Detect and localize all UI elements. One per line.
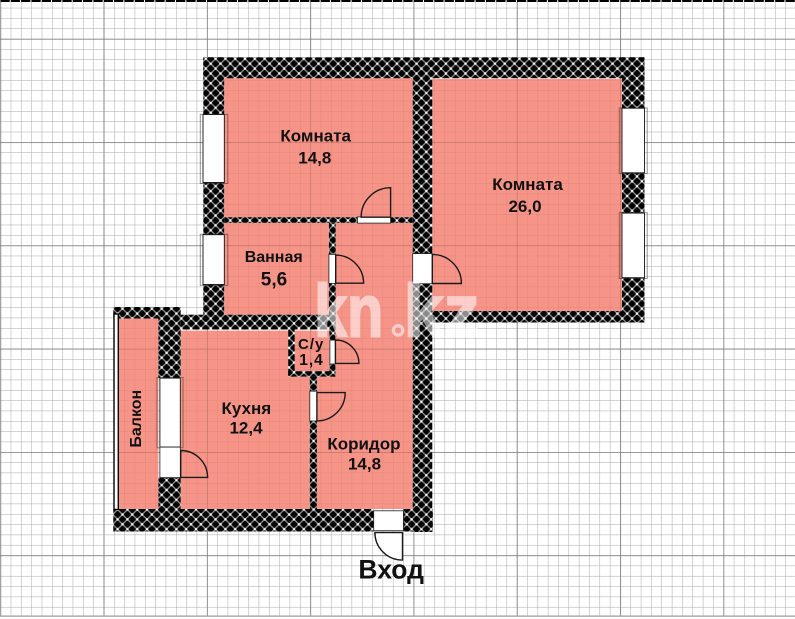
svg-text:Ванная: Ванная <box>245 249 303 266</box>
svg-text:kz: kz <box>404 271 480 353</box>
svg-text:Вход: Вход <box>358 555 424 585</box>
svg-text:Кухня: Кухня <box>222 399 272 418</box>
svg-text:1,4: 1,4 <box>299 352 324 369</box>
svg-text:14,8: 14,8 <box>348 455 381 474</box>
svg-text:5,6: 5,6 <box>261 269 287 290</box>
svg-text:Коридор: Коридор <box>327 434 400 453</box>
svg-text:kn: kn <box>314 270 383 353</box>
svg-text:Комната: Комната <box>492 175 563 194</box>
svg-text:14,8: 14,8 <box>298 149 331 168</box>
svg-text:Комната: Комната <box>280 126 351 145</box>
svg-text:26,0: 26,0 <box>508 197 541 216</box>
svg-text:12,4: 12,4 <box>229 419 263 438</box>
svg-text:Балкон: Балкон <box>128 390 145 448</box>
svg-text:С/у: С/у <box>298 336 324 353</box>
